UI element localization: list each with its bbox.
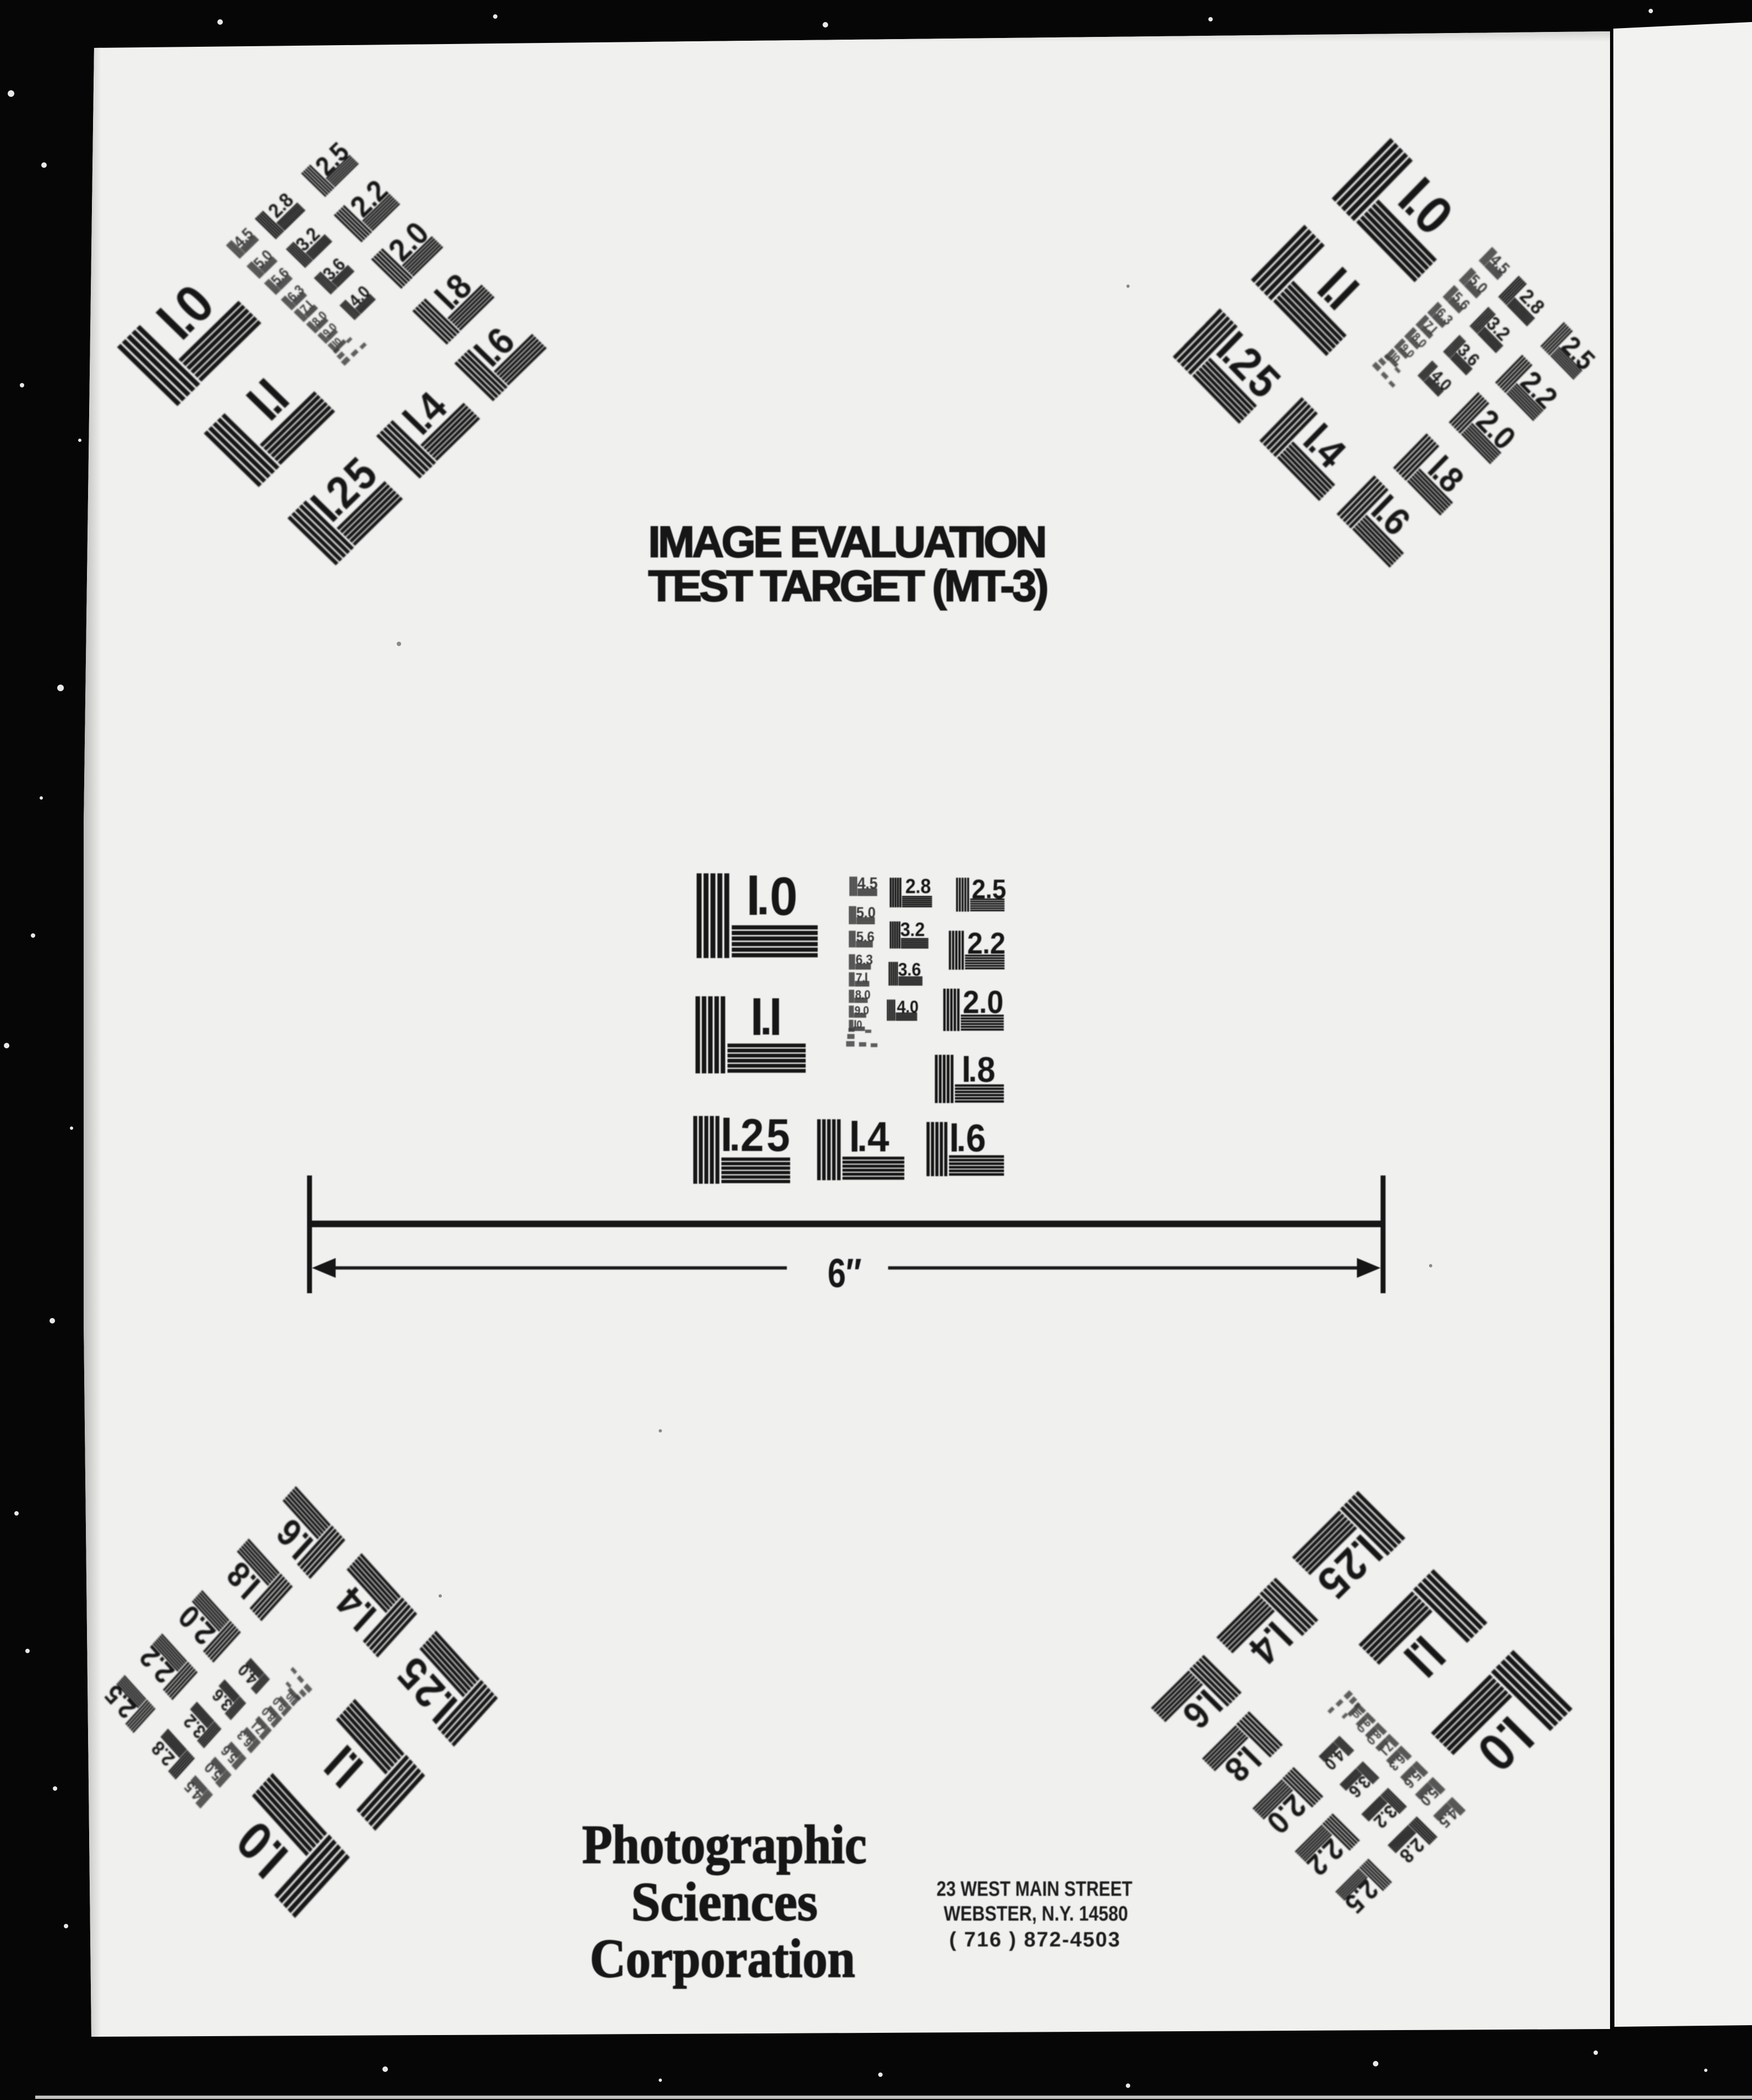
svg-text:TEST TARGET (MT-3): TEST TARGET (MT-3) [648, 561, 1049, 610]
svg-text:IMAGE EVALUATION: IMAGE EVALUATION [648, 517, 1047, 566]
svg-text:Sciences: Sciences [631, 1871, 818, 1932]
svg-text:Photographic: Photographic [582, 1814, 867, 1875]
svg-text:6″: 6″ [828, 1250, 862, 1296]
svg-text:23 WEST MAIN STREET: 23 WEST MAIN STREET [937, 1878, 1132, 1901]
svg-text:( 716 ) 872-4503: ( 716 ) 872-4503 [949, 1928, 1120, 1951]
svg-text:Corporation: Corporation [590, 1928, 855, 1989]
svg-text:WEBSTER, N.Y. 14580: WEBSTER, N.Y. 14580 [944, 1902, 1128, 1926]
